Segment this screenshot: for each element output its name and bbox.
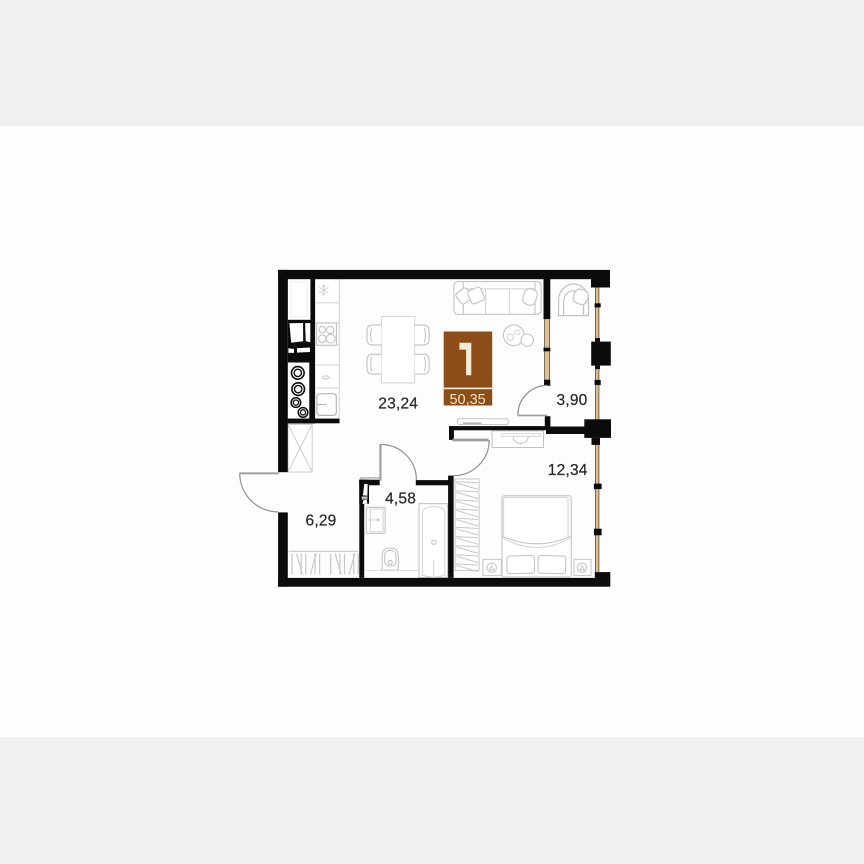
svg-text:23,24: 23,24 xyxy=(378,396,418,413)
svg-text:50,35: 50,35 xyxy=(449,392,485,408)
svg-text:12,34: 12,34 xyxy=(548,462,588,479)
svg-text:6,29: 6,29 xyxy=(306,512,337,529)
svg-text:4,58: 4,58 xyxy=(385,491,416,508)
svg-text:3,90: 3,90 xyxy=(557,392,588,409)
